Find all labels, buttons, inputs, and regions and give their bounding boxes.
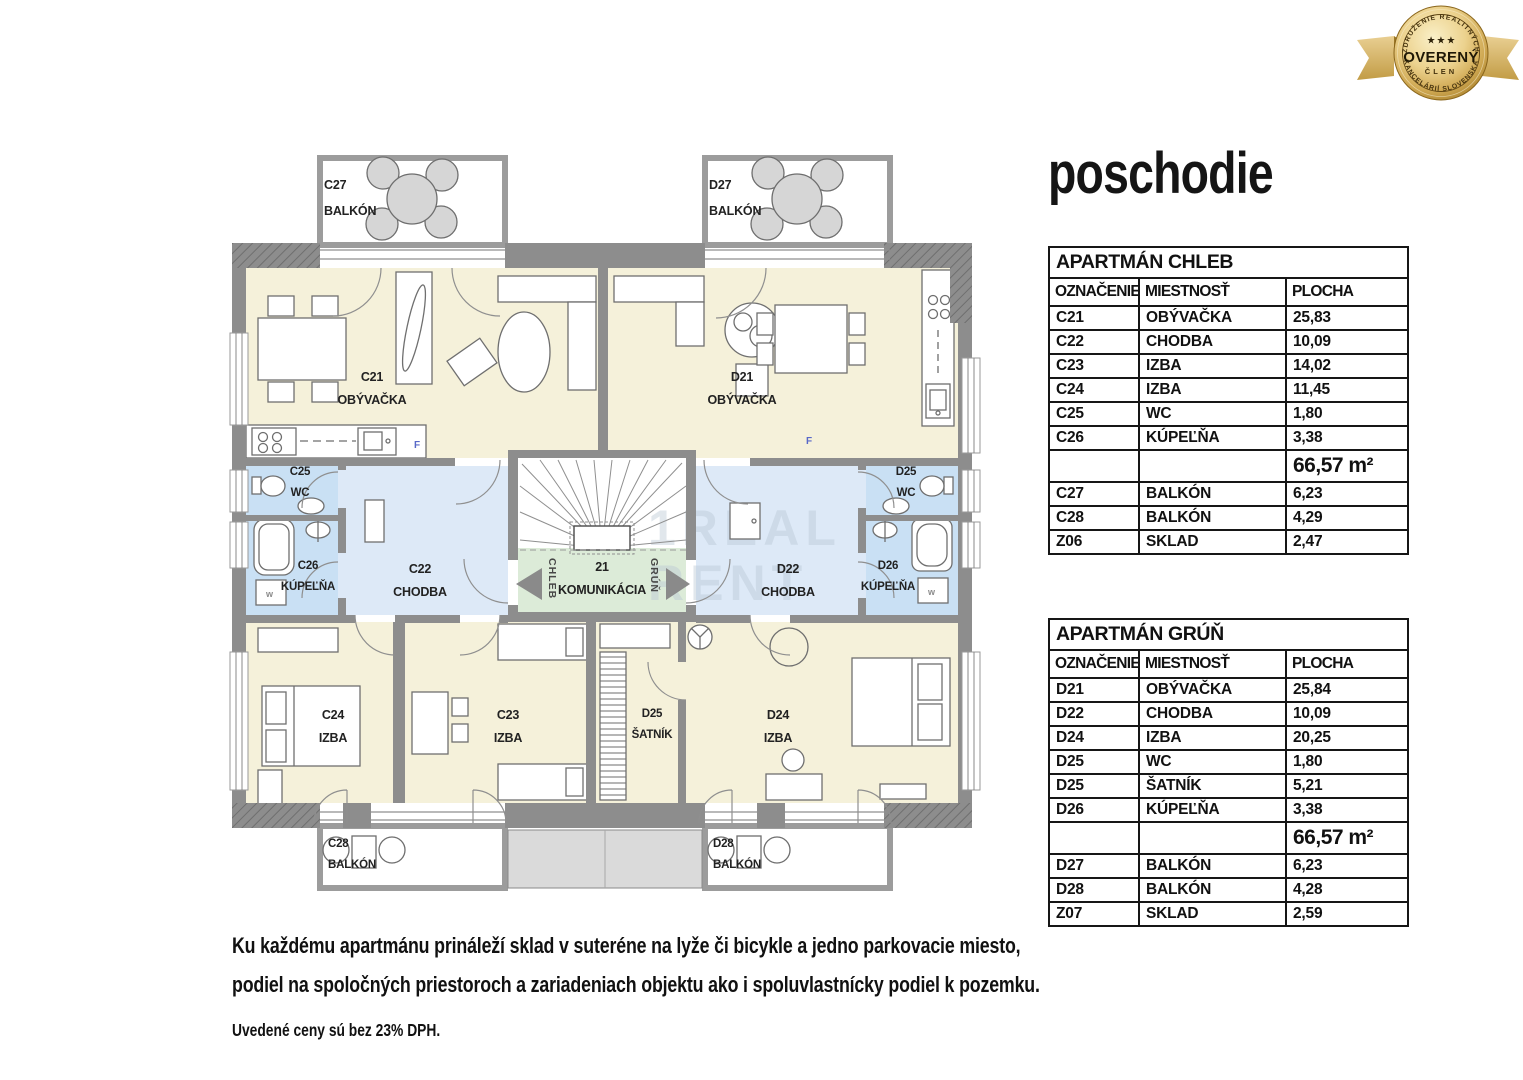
room-name: CHODBA bbox=[393, 581, 447, 604]
table-title: APARTMÁN GRÚŇ bbox=[1049, 619, 1408, 650]
cell-room: IZBA bbox=[1139, 378, 1286, 402]
col-header: OZNAČENIE bbox=[1049, 278, 1139, 306]
table-row: D28 BALKÓN 4,28 bbox=[1049, 878, 1408, 902]
cell-code: D22 bbox=[1049, 702, 1139, 726]
badge-title: OVERENÝ bbox=[1403, 48, 1478, 66]
cell-code: C25 bbox=[1049, 402, 1139, 426]
cell-code: C24 bbox=[1049, 378, 1139, 402]
room-label-d24: D24 IZBA bbox=[764, 704, 792, 750]
room-code: C26 bbox=[281, 556, 335, 577]
room-name: BALKÓN bbox=[324, 198, 376, 224]
room-name: KÚPEĽŇA bbox=[281, 577, 335, 598]
room-label-c21: C21 OBÝVAČKA bbox=[337, 366, 406, 412]
table-row: D26 KÚPEĽŇA 3,38 bbox=[1049, 798, 1408, 822]
cell-room: IZBA bbox=[1139, 354, 1286, 378]
cell-room: BALKÓN bbox=[1139, 506, 1286, 530]
cell-area: 11,45 bbox=[1286, 378, 1408, 402]
cell-area: 2,59 bbox=[1286, 902, 1408, 926]
cell-room: KÚPEĽŇA bbox=[1139, 798, 1286, 822]
room-label-d25-wc: D25 WC bbox=[896, 462, 917, 504]
brochure-page: 1REAL RENT bbox=[0, 0, 1523, 1080]
table-row: Z07 SKLAD 2,59 bbox=[1049, 902, 1408, 926]
table-row: D25 ŠATNÍK 5,21 bbox=[1049, 774, 1408, 798]
arrow-label-grun: GRÚŇ bbox=[648, 558, 660, 593]
cell-room: BALKÓN bbox=[1139, 854, 1286, 878]
room-code: D28 bbox=[713, 834, 761, 855]
room-label-c22: C22 CHODBA bbox=[393, 558, 447, 604]
room-label-d28: D28 BALKÓN bbox=[713, 834, 761, 876]
table-row: Z06 SKLAD 2,47 bbox=[1049, 530, 1408, 554]
cell-code: D25 bbox=[1049, 750, 1139, 774]
cell-code: D21 bbox=[1049, 678, 1139, 702]
cell-area: 25,83 bbox=[1286, 306, 1408, 330]
room-code: C23 bbox=[494, 704, 522, 727]
table-row: C24 IZBA 11,45 bbox=[1049, 378, 1408, 402]
room-name: BALKÓN bbox=[709, 198, 761, 224]
table-row: C27 BALKÓN 6,23 bbox=[1049, 482, 1408, 506]
cell-area: 4,29 bbox=[1286, 506, 1408, 530]
cell-area: 5,21 bbox=[1286, 774, 1408, 798]
overeny-badge: ZDRUŽENIE REALITNÝCH KANCELÁRIÍ SLOVENSK… bbox=[1350, 4, 1523, 108]
room-code: C28 bbox=[328, 834, 376, 855]
cell-room: OBÝVAČKA bbox=[1139, 306, 1286, 330]
room-code: D24 bbox=[764, 704, 792, 727]
room-name: BALKÓN bbox=[328, 855, 376, 876]
room-name: WC bbox=[290, 483, 311, 504]
room-name: IZBA bbox=[319, 727, 347, 750]
room-name: IZBA bbox=[494, 727, 522, 750]
room-code: D25 bbox=[632, 704, 673, 725]
room-name: BALKÓN bbox=[713, 855, 761, 876]
table-row: D21 OBÝVAČKA 25,84 bbox=[1049, 678, 1408, 702]
footer-line-1: Ku každému apartmánu prináleží sklad v s… bbox=[232, 926, 1040, 965]
room-name: IZBA bbox=[764, 727, 792, 750]
room-name: ŠATNÍK bbox=[632, 725, 673, 746]
cell-room: CHODBA bbox=[1139, 330, 1286, 354]
cell-room: BALKÓN bbox=[1139, 482, 1286, 506]
cell-area: 14,02 bbox=[1286, 354, 1408, 378]
arrow-label-chleb: CHLEB bbox=[546, 558, 558, 599]
cell-area: 6,23 bbox=[1286, 482, 1408, 506]
table-row: D24 IZBA 20,25 bbox=[1049, 726, 1408, 750]
cell-code: D27 bbox=[1049, 854, 1139, 878]
table-total-row: 66,57 m² bbox=[1049, 450, 1408, 482]
cell-empty bbox=[1049, 822, 1139, 854]
cell-code: D26 bbox=[1049, 798, 1139, 822]
room-code: C25 bbox=[290, 462, 311, 483]
room-code: C22 bbox=[393, 558, 447, 581]
room-label-c24: C24 IZBA bbox=[319, 704, 347, 750]
table-row: C21 OBÝVAČKA 25,83 bbox=[1049, 306, 1408, 330]
cell-room: BALKÓN bbox=[1139, 878, 1286, 902]
table-row: C28 BALKÓN 4,29 bbox=[1049, 506, 1408, 530]
room-label-c25: C25 WC bbox=[290, 462, 311, 504]
room-code: D22 bbox=[761, 558, 815, 581]
cell-empty bbox=[1139, 822, 1286, 854]
room-label-c27: C27 BALKÓN bbox=[324, 172, 376, 224]
fridge-label-d: F bbox=[806, 436, 812, 447]
col-header: MIESTNOSŤ bbox=[1139, 278, 1286, 306]
table-row: C22 CHODBA 10,09 bbox=[1049, 330, 1408, 354]
cell-code: D24 bbox=[1049, 726, 1139, 750]
cell-area: 10,09 bbox=[1286, 330, 1408, 354]
room-name: OBÝVAČKA bbox=[337, 389, 406, 412]
cell-code: C21 bbox=[1049, 306, 1139, 330]
cell-room: WC bbox=[1139, 750, 1286, 774]
room-label-d22: D22 CHODBA bbox=[761, 558, 815, 604]
cell-room: CHODBA bbox=[1139, 702, 1286, 726]
table-row: C23 IZBA 14,02 bbox=[1049, 354, 1408, 378]
table-row: D22 CHODBA 10,09 bbox=[1049, 702, 1408, 726]
badge-subtitle: ČLEN bbox=[1425, 67, 1457, 76]
room-name: OBÝVAČKA bbox=[707, 389, 776, 412]
room-label-komunikacia: 21 KOMUNIKÁCIA bbox=[558, 556, 646, 602]
cell-code: D28 bbox=[1049, 878, 1139, 902]
table-row: D27 BALKÓN 6,23 bbox=[1049, 854, 1408, 878]
room-name: WC bbox=[896, 483, 917, 504]
cell-code: C28 bbox=[1049, 506, 1139, 530]
room-label-c28: C28 BALKÓN bbox=[328, 834, 376, 876]
cell-code: C26 bbox=[1049, 426, 1139, 450]
cell-code: C27 bbox=[1049, 482, 1139, 506]
cell-code: Z06 bbox=[1049, 530, 1139, 554]
room-code: D25 bbox=[896, 462, 917, 483]
room-label-c23: C23 IZBA bbox=[494, 704, 522, 750]
cell-area: 10,09 bbox=[1286, 702, 1408, 726]
cell-room: IZBA bbox=[1139, 726, 1286, 750]
cell-area: 20,25 bbox=[1286, 726, 1408, 750]
room-code: D27 bbox=[709, 172, 761, 198]
cell-code: C22 bbox=[1049, 330, 1139, 354]
cell-empty bbox=[1049, 450, 1139, 482]
table-row: C26 KÚPEĽŇA 3,38 bbox=[1049, 426, 1408, 450]
cell-area: 1,80 bbox=[1286, 750, 1408, 774]
footer-vat-note: Uvedené ceny sú bez 23% DPH. bbox=[232, 1020, 440, 1041]
footer-paragraph: Ku každému apartmánu prináleží sklad v s… bbox=[232, 926, 1040, 1004]
table-title: APARTMÁN CHLEB bbox=[1049, 247, 1408, 278]
cell-area: 3,38 bbox=[1286, 798, 1408, 822]
cell-room: OBÝVAČKA bbox=[1139, 678, 1286, 702]
col-header: MIESTNOSŤ bbox=[1139, 650, 1286, 678]
cell-area: 1,80 bbox=[1286, 402, 1408, 426]
badge-stars-icon: ★ ★ ★ bbox=[1427, 35, 1456, 45]
cell-area: 4,28 bbox=[1286, 878, 1408, 902]
table-total-row: 66,57 m² bbox=[1049, 822, 1408, 854]
washer-label-d: w bbox=[927, 587, 936, 597]
room-code: C21 bbox=[337, 366, 406, 389]
cell-area: 2,47 bbox=[1286, 530, 1408, 554]
room-name: CHODBA bbox=[761, 581, 815, 604]
page-title: poschodie bbox=[1048, 140, 1273, 207]
room-label-d25-satnik: D25 ŠATNÍK bbox=[632, 704, 673, 746]
room-name: KOMUNIKÁCIA bbox=[558, 579, 646, 602]
cell-room: ŠATNÍK bbox=[1139, 774, 1286, 798]
col-header: PLOCHA bbox=[1286, 650, 1408, 678]
room-code: C24 bbox=[319, 704, 347, 727]
room-label-d26: D26 KÚPEĽŇA bbox=[861, 556, 915, 598]
fridge-label-c: F bbox=[414, 440, 420, 451]
col-header: PLOCHA bbox=[1286, 278, 1408, 306]
room-code: C27 bbox=[324, 172, 376, 198]
table-row: C25 WC 1,80 bbox=[1049, 402, 1408, 426]
cell-room: WC bbox=[1139, 402, 1286, 426]
cell-room: KÚPEĽŇA bbox=[1139, 426, 1286, 450]
cell-code: Z07 bbox=[1049, 902, 1139, 926]
total-area: 66,57 m² bbox=[1286, 822, 1408, 854]
cell-area: 3,38 bbox=[1286, 426, 1408, 450]
room-label-d27: D27 BALKÓN bbox=[709, 172, 761, 224]
total-area: 66,57 m² bbox=[1286, 450, 1408, 482]
washer-label-c: w bbox=[265, 589, 274, 599]
room-label-d21: D21 OBÝVAČKA bbox=[707, 366, 776, 412]
room-label-c26: C26 KÚPEĽŇA bbox=[281, 556, 335, 598]
apartment-table-grun: APARTMÁN GRÚŇ OZNAČENIE MIESTNOSŤ PLOCHA… bbox=[1048, 618, 1409, 927]
col-header: OZNAČENIE bbox=[1049, 650, 1139, 678]
room-code: 21 bbox=[558, 556, 646, 579]
cell-room: SKLAD bbox=[1139, 902, 1286, 926]
room-name: KÚPEĽŇA bbox=[861, 577, 915, 598]
cell-code: D25 bbox=[1049, 774, 1139, 798]
cell-area: 6,23 bbox=[1286, 854, 1408, 878]
room-code: D21 bbox=[707, 366, 776, 389]
cell-code: C23 bbox=[1049, 354, 1139, 378]
room-code: D26 bbox=[861, 556, 915, 577]
table-row: D25 WC 1,80 bbox=[1049, 750, 1408, 774]
cell-empty bbox=[1139, 450, 1286, 482]
cell-area: 25,84 bbox=[1286, 678, 1408, 702]
footer-line-2: podiel na spoločných priestoroch a zaria… bbox=[232, 965, 1040, 1004]
balcony-furniture-top bbox=[366, 157, 843, 240]
cell-room: SKLAD bbox=[1139, 530, 1286, 554]
apartment-table-chleb: APARTMÁN CHLEB OZNAČENIE MIESTNOSŤ PLOCH… bbox=[1048, 246, 1409, 555]
